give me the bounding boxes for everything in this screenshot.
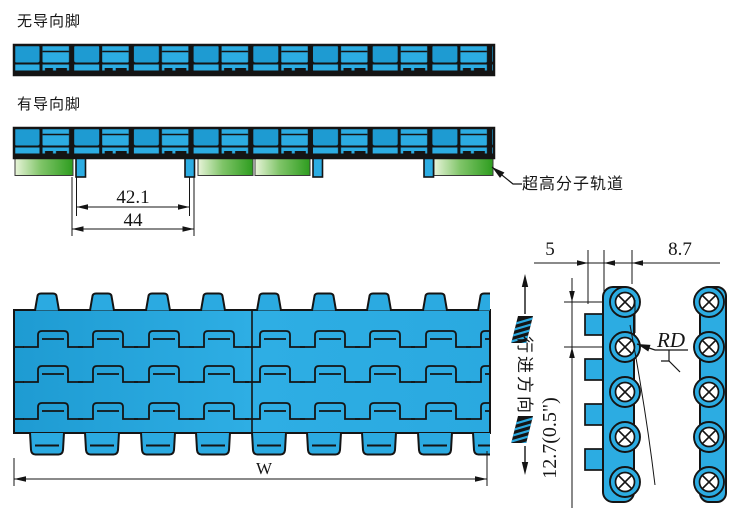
dim-pitch-lines	[564, 278, 602, 508]
dim-link-thickness: 8.7	[668, 239, 692, 260]
detail-views: 5 8.7 12.7(0.5")	[528, 238, 730, 510]
chain-side-view-left	[585, 287, 640, 502]
dim-w-lines	[14, 451, 487, 486]
dim-pitch: 12.7(0.5")	[539, 397, 561, 478]
belt-side-view-no-guide	[12, 43, 496, 77]
dim-top-arrows	[577, 260, 643, 266]
label-no-guide-feet: 无导向脚	[17, 10, 81, 31]
belt-strip-no-guide	[14, 45, 494, 75]
dim-foot-outer-spacing: 44	[124, 210, 144, 231]
belt-top-view: W	[10, 283, 530, 493]
top-teeth	[35, 294, 502, 311]
callout-track-label: 超高分子轨道	[522, 170, 624, 194]
bottom-teeth	[30, 433, 507, 455]
technical-drawing-canvas: 无导向脚	[0, 0, 730, 510]
label-with-guide-feet: 有导向脚	[17, 93, 81, 114]
guide-feet-dimensions: 42.1 44	[40, 148, 260, 243]
dim-belt-width: W	[256, 459, 273, 478]
dim-guide-tab-width: 5	[545, 239, 555, 260]
chain-side-view-right	[694, 287, 726, 502]
dim-back-flex-radius: RD	[656, 328, 685, 352]
dim-foot-inner-spacing: 42.1	[116, 187, 149, 208]
